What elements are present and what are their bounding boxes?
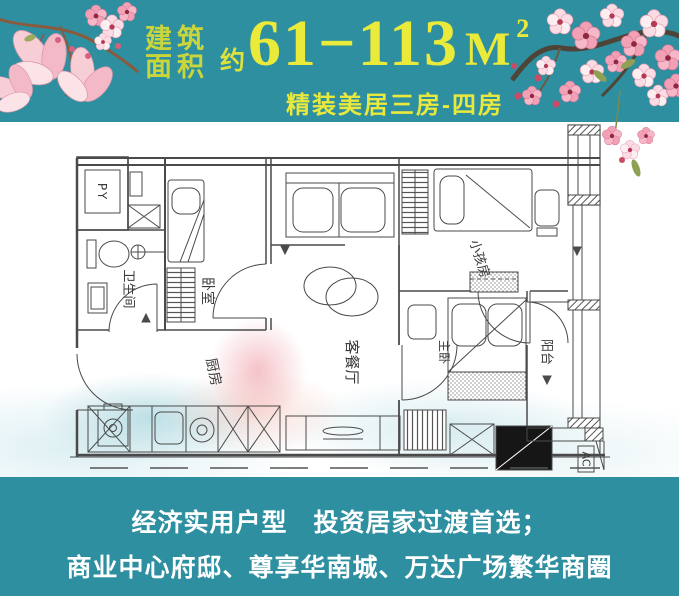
approx-prefix: 约 <box>220 41 245 77</box>
area-unit-exponent: 2 <box>516 14 529 43</box>
area-range-value: 61−113 <box>248 7 459 80</box>
building-area-label-line2: 面积 <box>145 53 209 81</box>
cherry-branch-top-right <box>511 4 679 178</box>
magnolia-branch-top-left <box>0 2 138 127</box>
building-area-label: 建筑 面积 <box>145 25 209 81</box>
building-area-label-line1: 建筑 <box>145 25 209 53</box>
slogan-line-2: 商业中心府邸、尊享华南城、万达广场繁华商圈 <box>0 546 679 591</box>
area-unit: M <box>465 23 510 76</box>
slogan-footer: 经济实用户型 投资居家过渡首选； 商业中心府邸、尊享华南城、万达广场繁华商圈 <box>0 501 679 591</box>
subtitle-rooms: 精装美居三房-四房 <box>286 85 504 120</box>
slogan-line-1: 经济实用户型 投资居家过渡首选； <box>0 501 679 546</box>
area-range-headline: 61−113M2 <box>248 6 529 82</box>
flyer-canvas: { "header": { "area_label_line1": "建筑", … <box>0 0 679 596</box>
